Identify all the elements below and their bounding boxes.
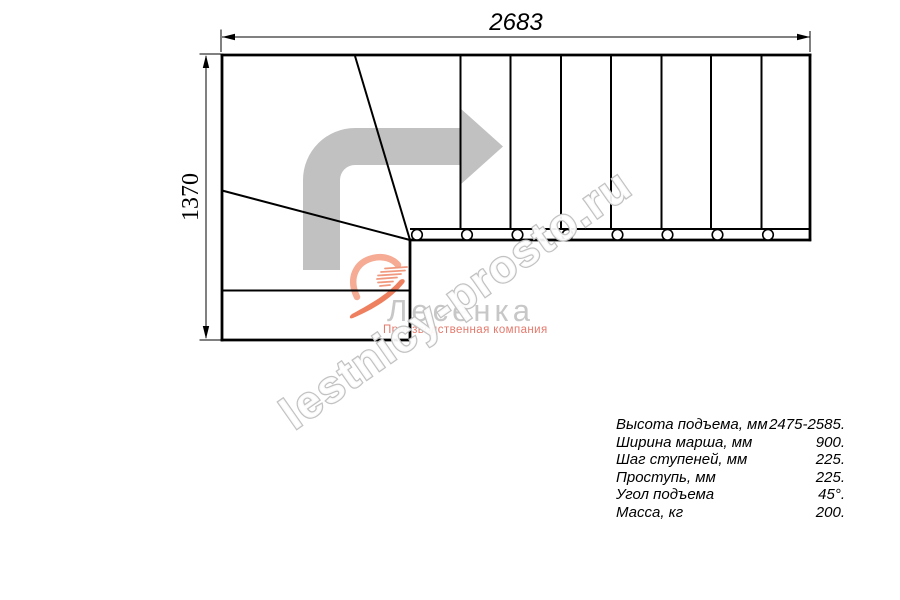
spec-value: 200. [816,504,845,522]
arrowhead-up [203,55,209,68]
spec-value: 225. [816,451,845,469]
baluster-circle [462,230,473,241]
spec-row-angle: Угол подъема 45°. [616,486,845,504]
spec-value: 2475-2585. [769,416,845,434]
spec-value: 225. [816,469,845,487]
width-dimension-label: 2683 [488,9,543,36]
arrowhead-right [797,34,810,40]
direction-arrow [303,108,503,270]
stair-drawing-page: Лесенка Производственная компания [0,0,900,600]
baluster-circle [612,230,623,241]
specs-table: Высота подъема, мм 2475-2585. Ширина мар… [616,416,845,522]
spec-label: Шаг ступеней, мм [616,451,747,469]
baluster-circle [662,230,673,241]
spec-value: 45°. [818,486,845,504]
height-dimension-label: 1370 [178,173,204,221]
spec-value: 900. [816,434,845,452]
spec-row-flight-width: Ширина марша, мм 900. [616,434,845,452]
spec-label: Ширина марша, мм [616,434,752,452]
spec-row-tread-depth: Проступь, мм 225. [616,469,845,487]
spec-label: Угол подъема [616,486,714,504]
spec-label: Масса, кг [616,504,683,522]
spec-row-mass: Масса, кг 200. [616,504,845,522]
spec-label: Проступь, мм [616,469,716,487]
spec-label: Высота подъема, мм [616,416,768,434]
spec-row-step-rise: Шаг ступеней, мм 225. [616,451,845,469]
arrowhead-down [203,326,209,339]
spec-row-height: Высота подъема, мм 2475-2585. [616,416,845,434]
baluster-circle [712,230,723,241]
baluster-circle [412,230,423,241]
baluster-circle [763,230,774,241]
arrowhead-left [222,34,235,40]
